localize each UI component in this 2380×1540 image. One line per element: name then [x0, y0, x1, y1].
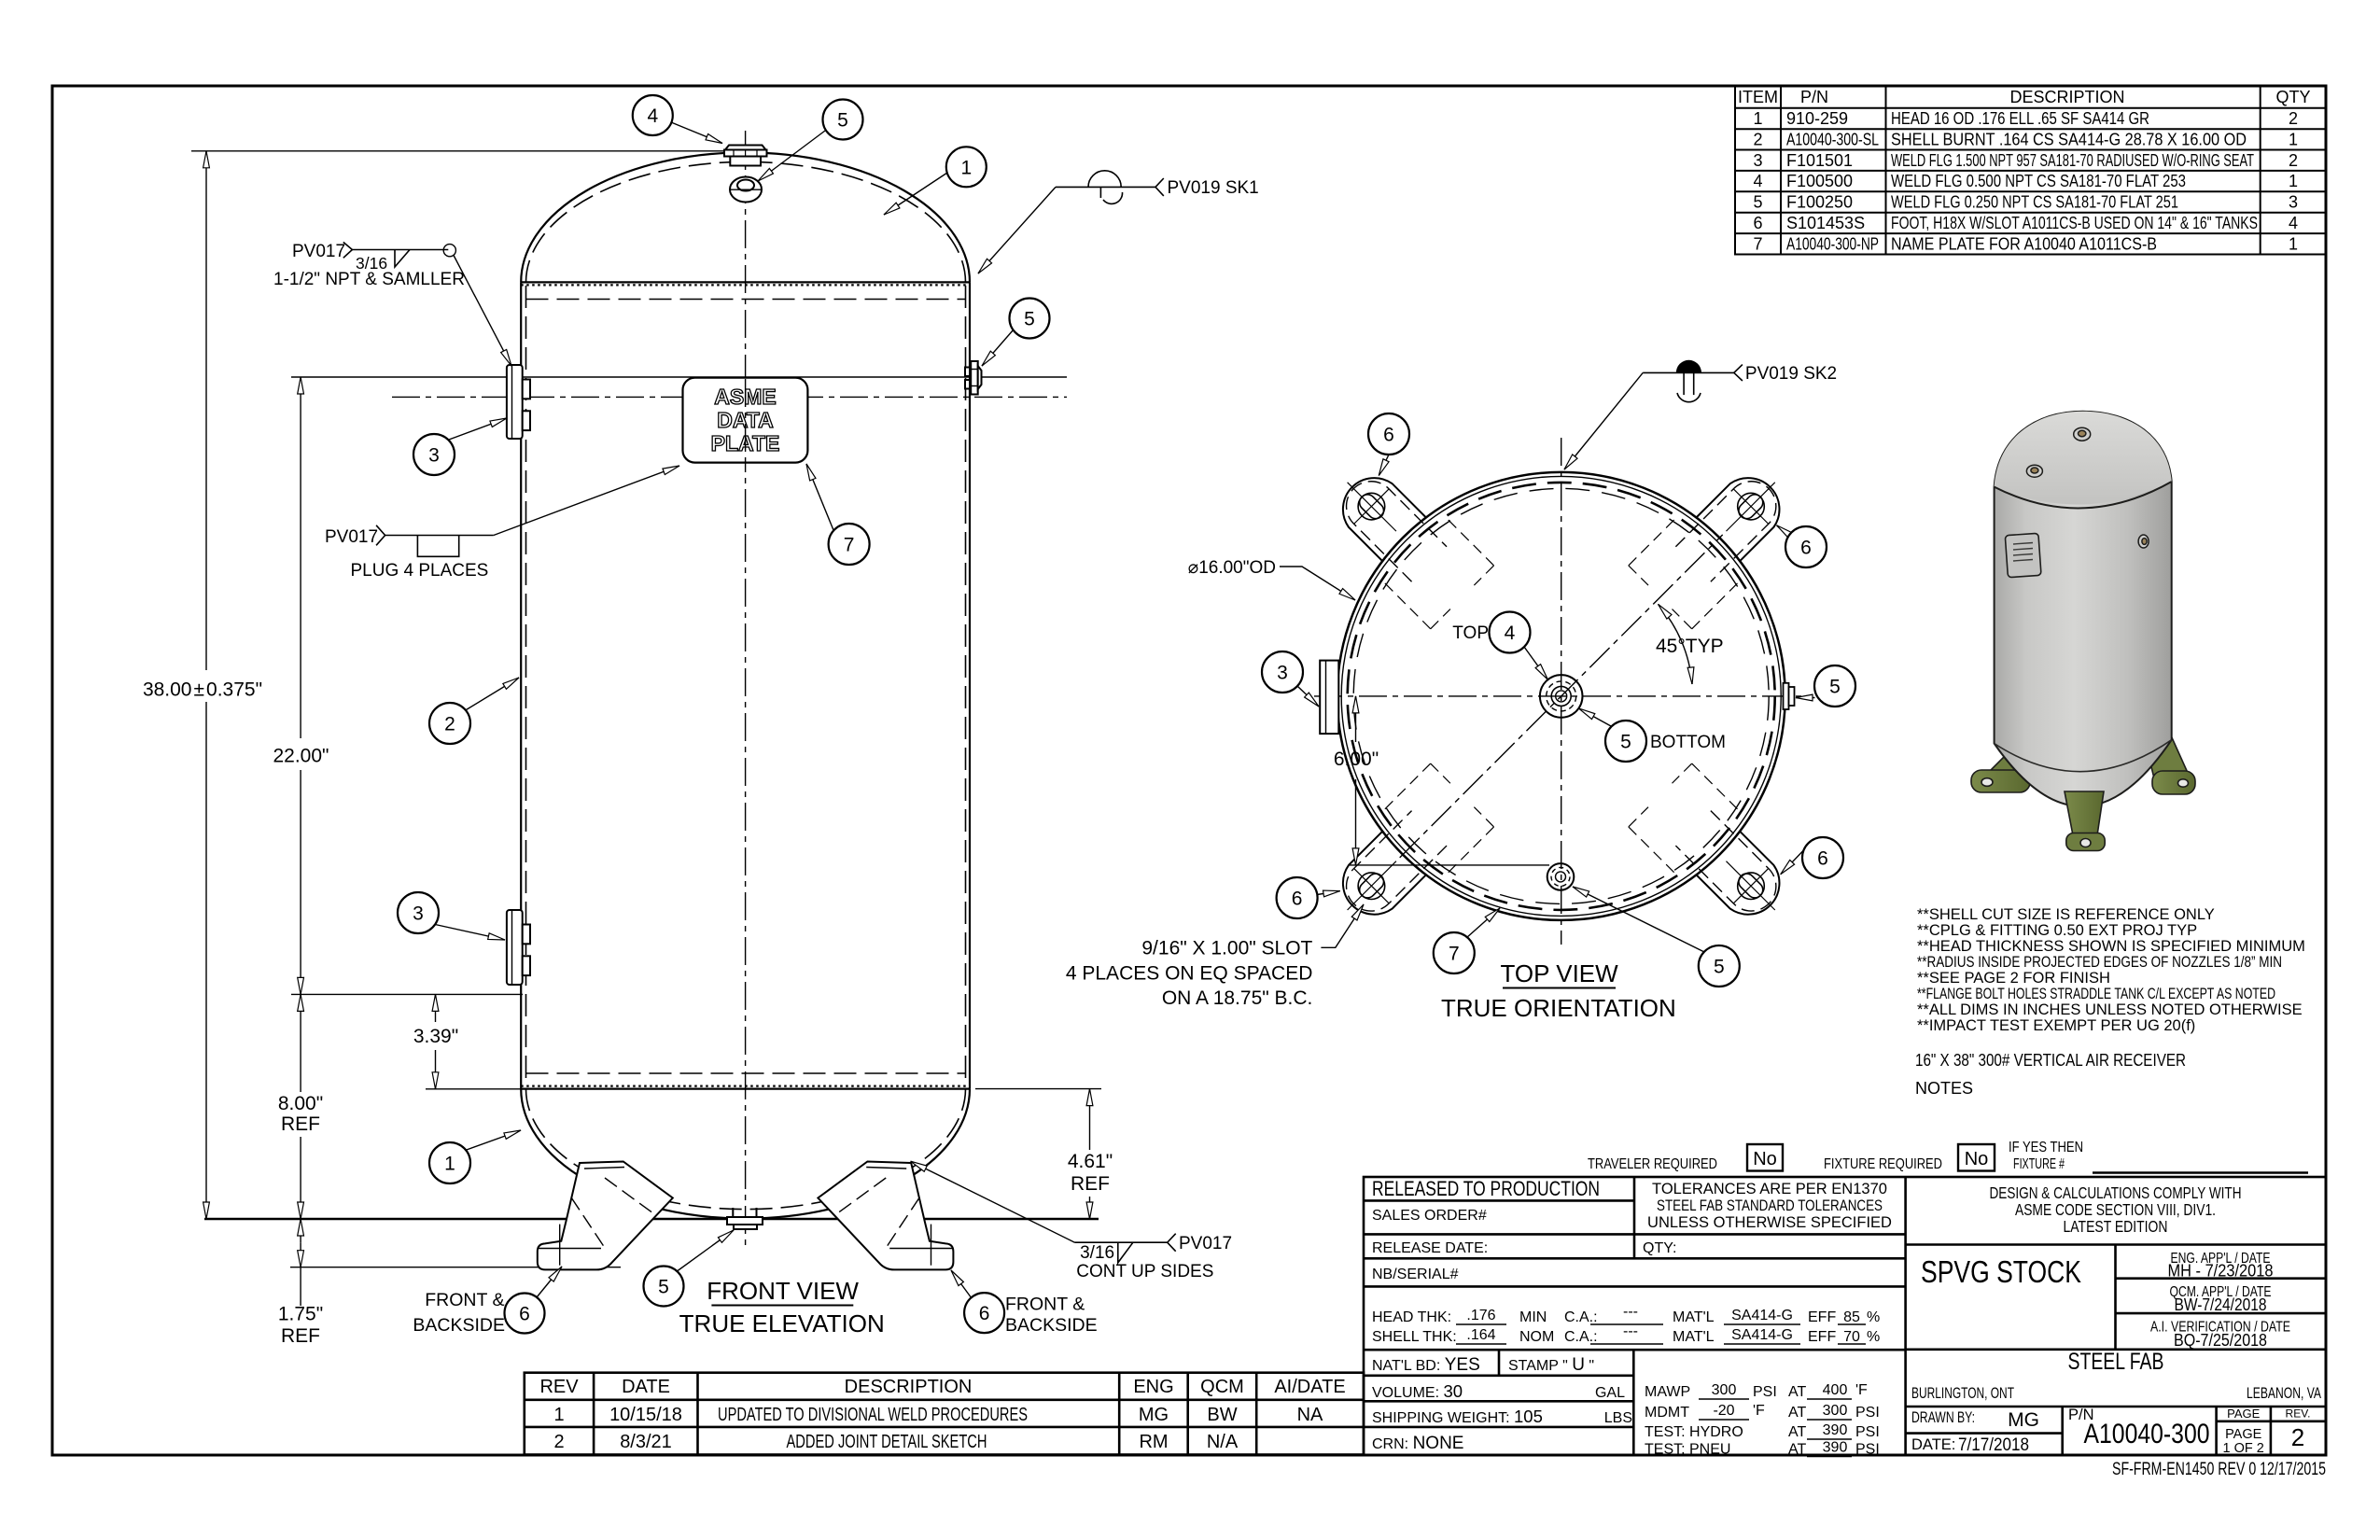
svg-text:No: No	[1965, 1149, 1989, 1169]
svg-text:AT: AT	[1788, 1384, 1806, 1400]
svg-text:DATE: DATE	[622, 1377, 670, 1397]
svg-text:A10040-300-SL: A10040-300-SL	[1786, 130, 1879, 148]
svg-text:PSI: PSI	[1855, 1442, 1880, 1458]
svg-text:REV: REV	[539, 1377, 579, 1397]
svg-text:RM: RM	[1139, 1432, 1168, 1452]
svg-text:1 OF 2: 1 OF 2	[2223, 1441, 2264, 1456]
svg-text:NB/SERIAL#: NB/SERIAL#	[1372, 1267, 1459, 1282]
svg-text:WELD FLG 0.500 NPT CS SA181-70: WELD FLG 0.500 NPT CS SA181-70 FLAT 253	[1891, 172, 2186, 190]
svg-text:3: 3	[1753, 151, 1762, 170]
svg-text:PV019 SK2: PV019 SK2	[1745, 364, 1837, 384]
svg-text:UNLESS OTHERWISE SPECIFIED: UNLESS OTHERWISE SPECIFIED	[1647, 1214, 1892, 1231]
svg-text:---: ---	[1623, 1323, 1638, 1339]
svg-text:**ALL DIMS IN INCHES UNLESS NO: **ALL DIMS IN INCHES UNLESS NOTED OTHERW…	[1917, 1001, 2303, 1018]
svg-text:2: 2	[2289, 109, 2298, 128]
svg-text:6: 6	[1383, 425, 1394, 446]
svg-text:**SHELL CUT SIZE IS REFERENCE: **SHELL CUT SIZE IS REFERENCE ONLY	[1917, 906, 2215, 923]
svg-text:SALES ORDER#: SALES ORDER#	[1372, 1208, 1487, 1224]
svg-text:70: 70	[1843, 1329, 1860, 1345]
svg-text:4 PLACES ON EQ SPACED: 4 PLACES ON EQ SPACED	[1066, 963, 1313, 985]
svg-text:EFF: EFF	[1808, 1329, 1836, 1345]
svg-text:1: 1	[960, 157, 972, 178]
svg-text:VOLUME: 30: VOLUME: 30	[1372, 1381, 1463, 1401]
svg-text:2: 2	[2291, 1423, 2304, 1451]
svg-text:5: 5	[1829, 677, 1841, 698]
svg-text:1: 1	[1753, 109, 1762, 128]
svg-text:6: 6	[979, 1303, 990, 1324]
svg-text:HEAD 16 OD .176 ELL .65 SF SA4: HEAD 16 OD .176 ELL .65 SF SA414 GR	[1891, 109, 2149, 128]
svg-text:AT: AT	[1788, 1424, 1806, 1440]
svg-text:300: 300	[1823, 1403, 1848, 1419]
svg-text:IF YES THEN: IF YES THEN	[2009, 1140, 2083, 1155]
svg-text:.176: .176	[1466, 1308, 1495, 1323]
svg-text:**RADIUS INSIDE PROJECTED EDGE: **RADIUS INSIDE PROJECTED EDGES OF NOZZL…	[1917, 954, 2282, 971]
svg-text:PLUG 4 PLACES: PLUG 4 PLACES	[351, 561, 489, 581]
svg-text:P/N: P/N	[1800, 88, 1828, 106]
svg-text:EFF: EFF	[1808, 1309, 1836, 1325]
svg-text:FRONT &: FRONT &	[425, 1290, 504, 1310]
svg-text:SA414-G: SA414-G	[1731, 1308, 1793, 1323]
svg-text:PV017: PV017	[325, 527, 378, 547]
svg-text:ENG: ENG	[1133, 1377, 1173, 1397]
svg-text:PSI: PSI	[1753, 1384, 1777, 1400]
svg-text:HEAD THK:: HEAD THK:	[1372, 1309, 1451, 1325]
svg-text:BACKSIDE: BACKSIDE	[413, 1315, 505, 1336]
svg-text:TOP: TOP	[1452, 623, 1489, 643]
svg-text:'F: 'F	[1753, 1403, 1765, 1419]
svg-text:RELEASE DATE:: RELEASE DATE:	[1372, 1240, 1488, 1256]
svg-text:MIN: MIN	[1519, 1309, 1547, 1325]
svg-text:3: 3	[428, 445, 440, 467]
svg-text:GAL: GAL	[1595, 1385, 1625, 1401]
svg-text:LBS: LBS	[1604, 1410, 1632, 1426]
svg-text:STAMP " U ": STAMP " U "	[1508, 1355, 1594, 1375]
svg-text:AT: AT	[1788, 1442, 1806, 1458]
svg-text:3: 3	[2289, 193, 2298, 212]
svg-text:TOP VIEW: TOP VIEW	[1501, 959, 1619, 987]
svg-text:DESCRIPTION: DESCRIPTION	[2009, 88, 2124, 106]
svg-text:REF: REF	[281, 1325, 320, 1347]
svg-text:300: 300	[1712, 1382, 1737, 1398]
svg-text:QTY: QTY	[2275, 88, 2310, 106]
svg-text:**FLANGE BOLT HOLES STRADDLE T: **FLANGE BOLT HOLES STRADDLE TANK C/L EX…	[1917, 986, 2275, 1002]
svg-text:SPVG STOCK: SPVG STOCK	[1921, 1254, 2081, 1289]
svg-text:FIXTURE REQUIRED: FIXTURE REQUIRED	[1824, 1156, 1942, 1172]
svg-text:C.A.:: C.A.:	[1564, 1329, 1598, 1345]
svg-text:QCM: QCM	[1200, 1377, 1244, 1397]
svg-text:PSI: PSI	[1855, 1405, 1880, 1421]
svg-text:390: 390	[1823, 1440, 1848, 1456]
svg-text:FOOT, H18X W/SLOT A1011CS-B US: FOOT, H18X W/SLOT A1011CS-B USED ON 14" …	[1891, 214, 2258, 232]
svg-text:**CPLG & FITTING 0.50 EXT PROJ: **CPLG & FITTING 0.50 EXT PROJ TYP	[1917, 922, 2197, 939]
svg-text:DRAWN BY:: DRAWN BY:	[1911, 1409, 1975, 1426]
svg-text:1: 1	[553, 1405, 564, 1425]
svg-text:BURLINGTON, ONT: BURLINGTON, ONT	[1911, 1385, 2014, 1402]
svg-text:2: 2	[1753, 130, 1762, 148]
svg-text:REF: REF	[1071, 1173, 1110, 1195]
svg-text:'F: 'F	[1855, 1382, 1868, 1398]
svg-text:MG: MG	[2008, 1409, 2039, 1431]
svg-text:MAT'L: MAT'L	[1673, 1309, 1715, 1325]
svg-text:6.00": 6.00"	[1334, 749, 1379, 770]
svg-text:BW-7/24/2018: BW-7/24/2018	[2175, 1295, 2267, 1314]
svg-text:AT: AT	[1788, 1405, 1806, 1421]
svg-text:S101453S: S101453S	[1786, 214, 1865, 232]
svg-text:5: 5	[1753, 193, 1762, 212]
svg-text:NOM: NOM	[1519, 1329, 1554, 1345]
svg-text:QTY:: QTY:	[1643, 1240, 1676, 1256]
svg-text:8.00": 8.00"	[278, 1093, 323, 1114]
svg-text:-20: -20	[1713, 1403, 1734, 1419]
svg-text:38.00±0.375": 38.00±0.375"	[143, 679, 262, 701]
svg-text:%: %	[1867, 1329, 1880, 1345]
svg-text:5: 5	[1024, 309, 1035, 330]
svg-text:390: 390	[1823, 1422, 1848, 1438]
svg-text:400: 400	[1823, 1382, 1848, 1398]
svg-text:F100500: F100500	[1786, 172, 1853, 190]
svg-text:8/3/21: 8/3/21	[620, 1432, 672, 1452]
svg-text:MAT'L: MAT'L	[1673, 1329, 1715, 1345]
svg-text:5: 5	[1714, 957, 1725, 978]
svg-text:.164: .164	[1466, 1327, 1495, 1343]
svg-text:PAGE: PAGE	[2225, 1427, 2262, 1442]
svg-text:BW: BW	[1207, 1405, 1237, 1425]
svg-text:6: 6	[1753, 214, 1762, 232]
svg-text:1: 1	[2289, 172, 2298, 190]
svg-text:UPDATED TO DIVISIONAL WELD PRO: UPDATED TO DIVISIONAL WELD PROCEDURES	[718, 1405, 1028, 1425]
svg-text:SHELL THK:: SHELL THK:	[1372, 1329, 1457, 1345]
svg-text:**HEAD THICKNESS SHOWN IS SPEC: **HEAD THICKNESS SHOWN IS SPECIFIED MINI…	[1917, 938, 2305, 955]
svg-text:MAWP: MAWP	[1645, 1384, 1690, 1400]
svg-text:BQ-7/25/2018: BQ-7/25/2018	[2174, 1330, 2267, 1350]
svg-text:A10040-300: A10040-300	[2084, 1419, 2210, 1449]
svg-text:STEEL FAB: STEEL FAB	[2068, 1349, 2164, 1375]
svg-text:FRONT VIEW: FRONT VIEW	[707, 1277, 859, 1305]
svg-text:DESCRIPTION: DESCRIPTION	[845, 1377, 973, 1397]
svg-text:910-259: 910-259	[1786, 109, 1848, 128]
svg-text:A10040-300-NP: A10040-300-NP	[1786, 234, 1879, 253]
svg-text:STEEL FAB STANDARD TOLERANCES: STEEL FAB STANDARD TOLERANCES	[1657, 1197, 1883, 1214]
svg-text:16" X 38" 300# VERTICAL AIR RE: 16" X 38" 300# VERTICAL AIR RECEIVER	[1915, 1051, 2186, 1070]
svg-text:6: 6	[1817, 848, 1828, 870]
svg-text:3.39": 3.39"	[413, 1026, 458, 1047]
svg-text:22.00": 22.00"	[273, 746, 329, 767]
svg-text:4: 4	[1753, 172, 1762, 190]
svg-text:F101501: F101501	[1786, 151, 1853, 170]
svg-text:TOLERANCES ARE PER EN1370: TOLERANCES ARE PER EN1370	[1652, 1181, 1887, 1197]
svg-text:4: 4	[647, 105, 658, 127]
svg-text:5: 5	[1620, 732, 1631, 753]
svg-text:CONT UP SIDES: CONT UP SIDES	[1076, 1262, 1213, 1281]
svg-text:FIXTURE #: FIXTURE #	[2013, 1156, 2065, 1172]
svg-text:2: 2	[2289, 151, 2298, 170]
svg-text:3: 3	[413, 903, 424, 925]
svg-text:4: 4	[2289, 214, 2298, 232]
svg-text:CRN: NONE: CRN: NONE	[1372, 1434, 1463, 1453]
svg-text:45°TYP: 45°TYP	[1656, 636, 1724, 657]
svg-text:2: 2	[553, 1432, 564, 1452]
svg-text:FRONT &: FRONT &	[1005, 1295, 1085, 1315]
svg-text:AI/DATE: AI/DATE	[1274, 1377, 1345, 1397]
svg-text:**SEE PAGE 2 FOR FINISH: **SEE PAGE 2 FOR FINISH	[1917, 970, 2110, 987]
svg-text:WELD FLG 1.500 NPT 957 SA181-7: WELD FLG 1.500 NPT 957 SA181-70 RADIUSED…	[1891, 151, 2254, 170]
svg-text:1-1/2" NPT & SAMLLER: 1-1/2" NPT & SAMLLER	[273, 270, 465, 289]
svg-text:F100250: F100250	[1786, 193, 1853, 212]
svg-text:1: 1	[2289, 130, 2298, 148]
svg-text:4.61": 4.61"	[1068, 1151, 1113, 1172]
svg-text:PV017: PV017	[1179, 1234, 1232, 1253]
svg-text:1: 1	[2289, 234, 2298, 253]
svg-text:ADDED JOINT DETAIL SKETCH: ADDED JOINT DETAIL SKETCH	[787, 1432, 987, 1452]
svg-text:4: 4	[1505, 623, 1516, 644]
svg-text:**IMPACT TEST EXEMPT PER UG 20: **IMPACT TEST EXEMPT PER UG 20(f)	[1917, 1017, 2195, 1034]
svg-text:5: 5	[658, 1277, 669, 1298]
svg-text:ASME CODE SECTION VIII, DIV1.: ASME CODE SECTION VIII, DIV1.	[2015, 1200, 2216, 1219]
svg-text:PSI: PSI	[1855, 1424, 1880, 1440]
svg-text:TEST: HYDRO: TEST: HYDRO	[1645, 1424, 1743, 1440]
svg-text:DESIGN & CALCULATIONS COMPLY W: DESIGN & CALCULATIONS COMPLY WITH	[1990, 1183, 2242, 1202]
svg-text:---: ---	[1623, 1304, 1638, 1320]
svg-text:5: 5	[837, 110, 848, 132]
svg-text:6: 6	[519, 1304, 530, 1325]
svg-text:BACKSIDE: BACKSIDE	[1005, 1315, 1098, 1336]
svg-text:SF-FRM-EN1450 REV 0 12/17/201: SF-FRM-EN1450 REV 0 12/17/2015	[2112, 1460, 2326, 1479]
svg-text:7: 7	[1449, 944, 1460, 965]
svg-text:6: 6	[1292, 889, 1303, 910]
svg-text:TRAVELER REQUIRED: TRAVELER REQUIRED	[1588, 1156, 1717, 1172]
svg-text:PV017: PV017	[292, 242, 345, 261]
svg-text:SHELL BURNT .164 CS SA414-G 28: SHELL BURNT .164 CS SA414-G 28.78 X 16.0…	[1891, 130, 2247, 148]
svg-text:2: 2	[444, 714, 455, 735]
svg-text:No: No	[1753, 1149, 1777, 1169]
svg-text:MG: MG	[1139, 1405, 1169, 1425]
svg-text:7/17/2018: 7/17/2018	[1958, 1435, 2029, 1455]
svg-text:TRUE ELEVATION: TRUE ELEVATION	[679, 1309, 885, 1337]
svg-text:LATEST EDITION: LATEST EDITION	[2064, 1217, 2168, 1236]
svg-text:RELEASED TO PRODUCTION: RELEASED TO PRODUCTION	[1372, 1177, 1600, 1200]
svg-text:MDMT: MDMT	[1645, 1405, 1689, 1421]
svg-text:3/16: 3/16	[1080, 1243, 1114, 1263]
svg-text:7: 7	[844, 535, 855, 556]
svg-text:3: 3	[1277, 663, 1288, 684]
svg-text:7: 7	[1753, 234, 1762, 253]
svg-text:LEBANON, VA: LEBANON, VA	[2247, 1385, 2321, 1402]
svg-text:TEST: PNEU: TEST: PNEU	[1645, 1442, 1730, 1458]
svg-text:C.A.:: C.A.:	[1564, 1309, 1598, 1325]
svg-text:NAT'L BD: YES: NAT'L BD: YES	[1372, 1355, 1480, 1375]
svg-text:10/15/18: 10/15/18	[609, 1405, 682, 1425]
svg-text:WELD FLG 0.250 NPT CS SA181-70: WELD FLG 0.250 NPT CS SA181-70 FLAT 251	[1891, 193, 2178, 212]
svg-text:PV019 SK1: PV019 SK1	[1168, 178, 1259, 198]
svg-text:85: 85	[1843, 1309, 1860, 1325]
svg-text:1: 1	[444, 1154, 455, 1175]
svg-text:1.75": 1.75"	[278, 1304, 323, 1325]
svg-text:NA: NA	[1297, 1405, 1323, 1425]
svg-text:ITEM: ITEM	[1738, 88, 1778, 106]
svg-text:9/16" X 1.00" SLOT: 9/16" X 1.00" SLOT	[1141, 938, 1312, 959]
svg-text:⌀16.00"OD: ⌀16.00"OD	[1188, 558, 1276, 578]
svg-text:6: 6	[1800, 538, 1812, 559]
svg-text:SA414-G: SA414-G	[1731, 1327, 1793, 1343]
svg-text:NAME PLATE FOR A10040 A1011CS-: NAME PLATE FOR A10040 A1011CS-B	[1891, 234, 2157, 253]
svg-text:REF: REF	[281, 1113, 320, 1135]
svg-text:TRUE ORIENTATION: TRUE ORIENTATION	[1441, 994, 1676, 1022]
svg-text:REV.: REV.	[2286, 1407, 2311, 1421]
svg-text:DATE:: DATE:	[1911, 1436, 1955, 1453]
svg-text:%: %	[1867, 1309, 1880, 1325]
svg-text:SHIPPING WEIGHT: 105: SHIPPING WEIGHT: 105	[1372, 1407, 1543, 1426]
svg-text:PAGE: PAGE	[2227, 1407, 2260, 1421]
svg-text:NOTES: NOTES	[1915, 1079, 1973, 1098]
svg-text:BOTTOM: BOTTOM	[1650, 733, 1726, 752]
svg-text:ON A 18.75" B.C.: ON A 18.75" B.C.	[1162, 987, 1313, 1009]
svg-text:N/A: N/A	[1207, 1432, 1239, 1452]
svg-text:MH - 7/23/2018: MH - 7/23/2018	[2168, 1261, 2274, 1281]
